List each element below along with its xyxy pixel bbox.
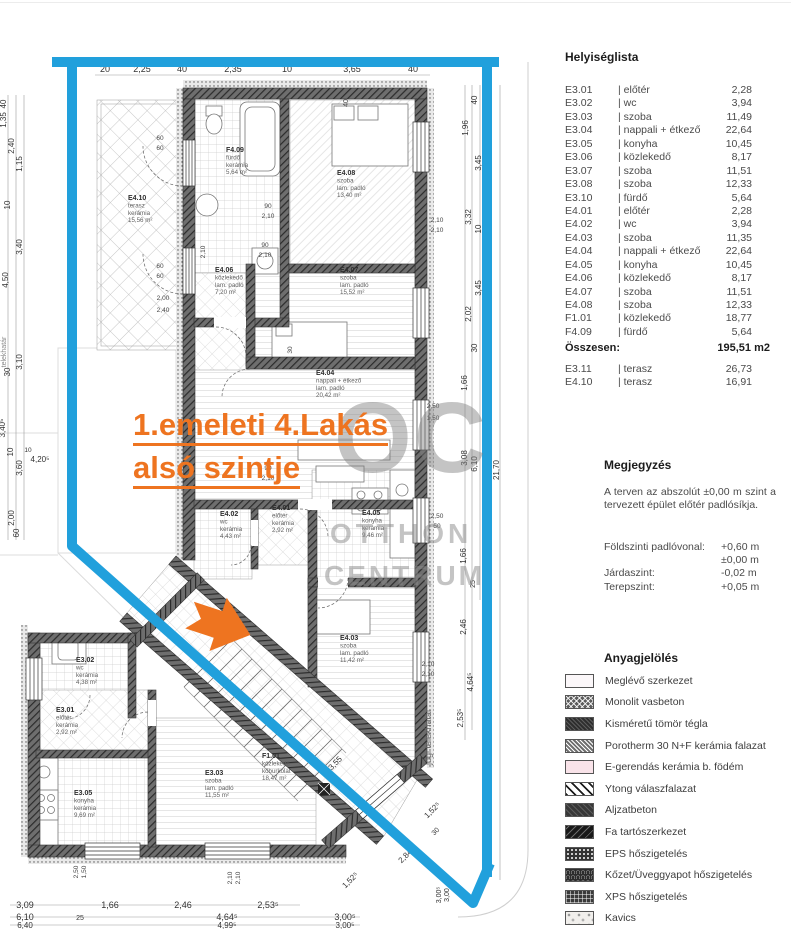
- dim-label: 2,00: [7, 510, 16, 526]
- room-list-cell: | előtér: [618, 205, 707, 218]
- legend-row: Kisméretű tömör tégla: [565, 713, 791, 735]
- dim-label: 40: [343, 99, 350, 107]
- room-label-code: F4.09: [226, 147, 244, 154]
- room-list-row: E3.02| wc3,94: [565, 97, 752, 110]
- kitchen-counter: [390, 470, 415, 558]
- room-list-cell: E3.02: [565, 97, 618, 110]
- room-label-detail: lam. padló: [316, 385, 345, 392]
- bed: [312, 600, 370, 634]
- legend-row: Monolit vasbeton: [565, 692, 791, 714]
- dim-label: 40: [0, 99, 8, 108]
- room-list-cell: 26,73: [707, 363, 752, 376]
- dim-label: 90: [264, 203, 272, 210]
- sink: [196, 194, 218, 216]
- room-list-cell: E3.10: [565, 192, 618, 205]
- dim-label: 10: [24, 447, 32, 454]
- room-list-cell: | fürdő: [618, 326, 707, 339]
- dim-label: 3,09: [16, 900, 34, 910]
- room-label-detail: 18,47 m²: [262, 775, 286, 782]
- dim-label: 3,08: [460, 450, 469, 466]
- dim-label: 30: [3, 367, 12, 376]
- legend-label: E-gerendás kerámia b. födém: [605, 761, 743, 773]
- dim-label: 40: [470, 95, 479, 104]
- room-list-cell: | nappali + étkező: [618, 245, 707, 258]
- legend-row: Porotherm 30 N+F kerámia falazat: [565, 735, 791, 757]
- room-label-detail: 9,69 m²: [74, 812, 95, 819]
- screed-swatch: [565, 803, 594, 817]
- room-label-detail: közlekedő: [215, 274, 243, 281]
- level-cell: Járdaszint:: [604, 567, 721, 580]
- room-list-cell: | szoba: [618, 299, 707, 312]
- legend-label: XPS hőszigetelés: [605, 891, 687, 903]
- dim-label: 2,50: [427, 403, 440, 410]
- room-list-row: E4.04| nappali + étkező22,64: [565, 245, 752, 258]
- total-row: Összesen: 195,51 m2: [565, 342, 770, 354]
- room-label-detail: 20,42 m²: [316, 392, 340, 399]
- room-label-detail: fürdő: [226, 154, 241, 161]
- room-label-detail: kerámia: [76, 672, 99, 679]
- legend-label: Ytong válaszfalazat: [605, 783, 696, 795]
- room-label-detail: 5,64 m²: [226, 169, 247, 176]
- room-list-cell: | közlekedő: [618, 151, 707, 164]
- room-list-cell: | szoba: [618, 165, 707, 178]
- room-list-cell: E3.05: [565, 138, 618, 151]
- dim-label: 10: [6, 447, 15, 456]
- room-list-cell: 5,64: [707, 326, 752, 339]
- unit-annotation: 1.emeleti 4.Lakás alsó szintje: [133, 404, 388, 490]
- room-label-detail: konyha: [362, 517, 383, 524]
- room-list-cell: F4.09: [565, 326, 618, 339]
- room-label-detail: szoba: [340, 642, 357, 649]
- legend-row: Kőzet/Üveggyapot hőszigetelés: [565, 864, 791, 886]
- room-list-cell: | közlekedő: [618, 272, 707, 285]
- room-list-cell: 8,17: [707, 151, 752, 164]
- legend-row: E-gerendás kerámia b. födém: [565, 756, 791, 778]
- room-label-detail: kőburkolat: [262, 768, 291, 775]
- room-label-code: E4.10: [128, 195, 146, 202]
- room-label-detail: kerámia: [56, 722, 79, 729]
- room-list-row: E4.10| terasz16,91: [565, 376, 752, 389]
- room-list-cell: E4.10: [565, 376, 618, 389]
- level-cell: -0,02 m: [721, 567, 776, 580]
- room-list-cell: | nappali + étkező: [618, 124, 707, 137]
- dim-label: 1,50: [81, 865, 88, 878]
- room-label-detail: lam. padló: [337, 185, 366, 192]
- room-list-row: F4.09| fürdő5,64: [565, 326, 752, 339]
- room-list-cell: 12,33: [707, 299, 752, 312]
- room-label-detail: közlekedő: [262, 760, 290, 767]
- sheet-border: [458, 62, 528, 917]
- wool-swatch: [565, 868, 594, 882]
- legend-label: Kavics: [605, 912, 636, 924]
- level-cell: [604, 554, 721, 567]
- slab-swatch: [565, 760, 594, 774]
- dim-label: telekhatár: [1, 336, 8, 367]
- legend-label: Kőzet/Üveggyapot hőszigetelés: [605, 869, 752, 881]
- room-label-code: E4.01: [272, 505, 290, 512]
- room-label-detail: 15,52 m²: [340, 289, 364, 296]
- dim-label: 1,66: [460, 375, 469, 391]
- room-list-row: F1.01| közlekedő18,77: [565, 312, 752, 325]
- notes-title: Megjegyzés: [604, 458, 671, 472]
- dim-label: 3,45: [474, 155, 483, 171]
- room-list-cell: 22,64: [707, 124, 752, 137]
- dim-label: 10: [3, 200, 12, 209]
- level-row: ±0,00 m: [604, 554, 776, 567]
- dim-label: 1,15: [15, 156, 24, 172]
- dim-label: 2,46: [174, 900, 192, 910]
- level-row: Terepszint:+0,05 m: [604, 581, 776, 594]
- dim-label: 2,10: [431, 227, 444, 234]
- dim-label: 3,40: [15, 239, 24, 255]
- room-label-detail: 15,56 m²: [128, 217, 152, 224]
- gravel-swatch: [565, 911, 594, 925]
- room-list-row: E4.01| előtér2,28: [565, 205, 752, 218]
- room-list-cell: E3.03: [565, 111, 618, 124]
- dim-label: 2,10: [262, 213, 275, 220]
- room-label-detail: szoba: [340, 274, 357, 281]
- room-list-cell: | szoba: [618, 178, 707, 191]
- dim-label: 2,40: [157, 307, 170, 314]
- room-label-detail: lam. padló: [340, 650, 369, 657]
- legend-row: Aljzatbeton: [565, 800, 791, 822]
- room-list-row: E4.07| szoba11,51: [565, 286, 752, 299]
- room-list-cell: E3.06: [565, 151, 618, 164]
- legend-label: Kisméretű tömör tégla: [605, 718, 708, 730]
- room-list-cell: 11,49: [707, 111, 752, 124]
- room-list-cell: F1.01: [565, 312, 618, 325]
- dim-label: 2,10: [227, 871, 234, 884]
- room-list-cell: | szoba: [618, 286, 707, 299]
- dim-label: 10: [474, 224, 483, 233]
- brick-swatch: [565, 717, 594, 731]
- dim-label: 2,10: [422, 671, 435, 678]
- room-label-code: E4.05: [362, 510, 380, 517]
- dim-label: jogi telekhatár: [423, 709, 433, 766]
- legend-label: EPS hőszigetelés: [605, 848, 687, 860]
- room-list-row: E4.02| wc3,94: [565, 218, 752, 231]
- dim-label: 2,02: [464, 306, 473, 322]
- dim-label: 2,50: [431, 513, 444, 520]
- room-label-code: E4.04: [316, 370, 334, 377]
- ytong-swatch: [565, 782, 594, 796]
- room-label-detail: szoba: [337, 177, 354, 184]
- room-list-cell: 5,64: [707, 192, 752, 205]
- room-label-detail: 4,43 m²: [220, 533, 241, 540]
- room-label-detail: kerámia: [74, 805, 97, 812]
- room-label-detail: szoba: [205, 777, 222, 784]
- materials-legend: Meglévő szerkezetMonolit vasbetonKismére…: [565, 670, 791, 929]
- room-list-cell: 3,94: [707, 218, 752, 231]
- unit-annotation-line2: alsó szintje: [133, 450, 300, 489]
- dim-label: 30: [470, 343, 479, 352]
- dim-label: 60: [156, 273, 164, 280]
- room-label-detail: lam. padló: [340, 282, 369, 289]
- dim-label: 4,20⁵: [31, 455, 50, 464]
- room-list-row: E3.04| nappali + étkező22,64: [565, 124, 752, 137]
- dim-label: 30: [287, 346, 294, 354]
- room-list-row: E3.01| előtér2,28: [565, 84, 752, 97]
- room-list-cell: | előtér: [618, 84, 707, 97]
- room-list-cell: E4.01: [565, 205, 618, 218]
- room-label-code: E4.07: [340, 267, 358, 274]
- room-list-row: E4.08| szoba12,33: [565, 299, 752, 312]
- room-list-cell: 8,17: [707, 272, 752, 285]
- room-list-cell: E4.06: [565, 272, 618, 285]
- room-list-row: E3.07| szoba11,51: [565, 165, 752, 178]
- legend-label: Porotherm 30 N+F kerámia falazat: [605, 740, 766, 752]
- info-panel: Helyiséglista E3.01| előtér2,28E3.02| wc…: [560, 0, 791, 929]
- dim-label: 6,10: [470, 456, 479, 472]
- room-list-cell: | terasz: [618, 363, 707, 376]
- room-list-cell: | konyha: [618, 138, 707, 151]
- dim-label: 2,40: [7, 138, 16, 154]
- total-label: Összesen:: [565, 342, 717, 354]
- dim-label: 3,60: [15, 460, 24, 476]
- room-list-cell: E4.05: [565, 259, 618, 272]
- room-label-code: E3.01: [56, 707, 74, 714]
- dim-label: 2,00: [157, 295, 170, 302]
- dim-label: 60: [156, 135, 164, 142]
- room-list-cell: 3,94: [707, 97, 752, 110]
- room-list-cell: 22,64: [707, 245, 752, 258]
- room-label-code: F1.01: [262, 753, 280, 760]
- room-label-detail: lam. padló: [205, 785, 234, 792]
- materials-title: Anyagjelölés: [604, 651, 678, 665]
- dim-label: 4,50: [1, 272, 10, 288]
- dim-label: 3,00⁵: [336, 921, 355, 929]
- room-label-detail: 2,92 m²: [56, 729, 77, 736]
- room-list-row: E3.06| közlekedő8,17: [565, 151, 752, 164]
- dim-label: 1,52⁵: [340, 870, 360, 890]
- room-list-row: E4.05| konyha10,45: [565, 259, 752, 272]
- dim-label: 90: [261, 242, 269, 249]
- level-cell: +0,60 m: [721, 541, 776, 554]
- level-cell: ±0,00 m: [721, 554, 776, 567]
- room-list-cell: 12,33: [707, 178, 752, 191]
- legend-row: Fa tartószerkezet: [565, 821, 791, 843]
- room-label-detail: 9,46 m²: [362, 532, 383, 539]
- room-list-title: Helyiséglista: [565, 50, 638, 64]
- room-label-detail: lam. padló: [215, 282, 244, 289]
- room-label-code: E3.03: [205, 770, 223, 777]
- room-list-cell: E4.08: [565, 299, 618, 312]
- room-label-detail: kerámia: [128, 210, 151, 217]
- dim-label: 30: [431, 827, 442, 838]
- room-list-cell: | közlekedő: [618, 312, 707, 325]
- room-list-cell: E4.07: [565, 286, 618, 299]
- legend-row: EPS hőszigetelés: [565, 843, 791, 865]
- floor-plan-area: 202,25402,35103,6540401,352,401,15103,40…: [0, 0, 545, 929]
- legend-label: Fa tartószerkezet: [605, 826, 686, 838]
- wood-swatch: [565, 825, 594, 839]
- room-label-detail: kerámia: [220, 526, 243, 533]
- room-label-detail: terasz: [128, 202, 145, 209]
- level-row: Földszinti padlóvonal:+0,60 m: [604, 541, 776, 554]
- legend-row: Kavics: [565, 908, 791, 930]
- room-list-cell: 11,35: [707, 232, 752, 245]
- dim-label: 3,10: [15, 354, 24, 370]
- unit-annotation-line1: 1.emeleti 4.Lakás: [133, 407, 388, 446]
- room-list-cell: E4.03: [565, 232, 618, 245]
- total-value: 195,51 m2: [717, 342, 770, 354]
- room-label-detail: kerámia: [226, 162, 249, 169]
- level-row: Járdaszint:-0,02 m: [604, 567, 776, 580]
- room-label-detail: 7,20 m²: [215, 289, 236, 296]
- room-label-code: E4.06: [215, 267, 233, 274]
- room-label-detail: kerámia: [272, 520, 295, 527]
- room-label-detail: 4,38 m²: [76, 679, 97, 686]
- room-list-row: E4.06| közlekedő8,17: [565, 272, 752, 285]
- dim-label: 2,53⁵: [456, 709, 465, 728]
- room-list-cell: 11,51: [707, 165, 752, 178]
- room-list-row: E3.11| terasz26,73: [565, 363, 752, 376]
- room-list-cell: 10,45: [707, 138, 752, 151]
- dim-label: 1,66: [101, 900, 119, 910]
- room-list: E3.01| előtér2,28E3.02| wc3,94E3.03| szo…: [565, 84, 752, 339]
- xps-swatch: [565, 890, 594, 904]
- room-label-detail: kerámia: [362, 525, 385, 532]
- room-label-detail: 13,40 m²: [337, 192, 361, 199]
- room-list-cell: E4.02: [565, 218, 618, 231]
- dim-label: 1,35: [0, 112, 8, 128]
- dim-label: 3,00⁵: [436, 887, 443, 904]
- room-list-cell: | wc: [618, 218, 707, 231]
- dim-label: 3,40⁵: [0, 419, 7, 438]
- room-label-detail: előtér: [272, 512, 287, 519]
- existing-swatch: [565, 674, 594, 688]
- room-list-cell: E3.07: [565, 165, 618, 178]
- dim-label: 6,40: [17, 921, 33, 929]
- room-list-cell: 16,91: [707, 376, 752, 389]
- dim-label: 2,10: [235, 871, 242, 884]
- dim-label: 60: [156, 145, 164, 152]
- dim-label: 3,45: [474, 280, 483, 296]
- dim-label: 1,50: [427, 415, 440, 422]
- room-label-detail: 2,92 m²: [272, 527, 293, 534]
- room-label-detail: konyha: [74, 797, 95, 804]
- dim-label: 25: [76, 915, 84, 922]
- porotherm-swatch: [565, 739, 594, 753]
- room-label-detail: nappali + étkező: [316, 377, 362, 384]
- dim-label: 60: [12, 528, 21, 537]
- dim-label: 25: [470, 580, 477, 588]
- rc-swatch: [565, 695, 594, 709]
- room-list-cell: 10,45: [707, 259, 752, 272]
- room-label-detail: 11,42 m²: [340, 657, 364, 664]
- legend-label: Aljzatbeton: [605, 804, 657, 816]
- level-list: Földszinti padlóvonal:+0,60 m±0,00 mJárd…: [604, 541, 776, 594]
- room-list-row: E3.03| szoba11,49: [565, 111, 752, 124]
- level-cell: +0,05 m: [721, 581, 776, 594]
- dim-label: 2,10: [422, 661, 435, 668]
- room-list-cell: 2,28: [707, 84, 752, 97]
- room-label-code: E3.05: [74, 790, 92, 797]
- legend-row: Ytong válaszfalazat: [565, 778, 791, 800]
- legend-label: Monolit vasbeton: [605, 696, 684, 708]
- dim-label: 60: [156, 263, 164, 270]
- room-list-cell: 2,28: [707, 205, 752, 218]
- dim-label: 1,66: [459, 548, 468, 564]
- room-list-cell: E4.04: [565, 245, 618, 258]
- room-list-cell: E3.01: [565, 84, 618, 97]
- room-label-code: E4.03: [340, 635, 358, 642]
- room-list-cell: E3.08: [565, 178, 618, 191]
- room-list-cell: 18,77: [707, 312, 752, 325]
- dim-label: 3,00: [444, 888, 451, 902]
- legend-row: XPS hőszigetelés: [565, 886, 791, 908]
- room-label-detail: wc: [219, 518, 228, 525]
- terrace-list: E3.11| terasz26,73E4.10| terasz16,91: [565, 363, 752, 390]
- eps-swatch: [565, 847, 594, 861]
- dim-label: 2,10: [200, 245, 207, 258]
- dim-label: 2,50: [73, 865, 80, 878]
- dim-label: 50: [433, 523, 441, 530]
- room-list-cell: | szoba: [618, 232, 707, 245]
- dim-label: 2,46: [459, 619, 468, 635]
- room-label-detail: előtér: [56, 714, 71, 721]
- dim-label: 2,10: [431, 217, 444, 224]
- room-label-code: E3.02: [76, 657, 94, 664]
- room-list-row: E3.08| szoba12,33: [565, 178, 752, 191]
- room-label-detail: wc: [75, 664, 84, 671]
- dim-label: 4,99⁵: [218, 921, 237, 929]
- dim-label: 1,96: [461, 120, 470, 136]
- room-label-code: E4.02: [220, 511, 238, 518]
- dim-label: 2,53⁵: [257, 900, 279, 910]
- room-list-cell: | terasz: [618, 376, 707, 389]
- room-label-code: E4.08: [337, 170, 355, 177]
- notes-body: A terven az abszolút ±0,00 m szint a ter…: [604, 486, 776, 512]
- room-list-cell: E3.04: [565, 124, 618, 137]
- level-cell: Földszinti padlóvonal:: [604, 541, 721, 554]
- level-cell: Terepszint:: [604, 581, 721, 594]
- dim-label: 21,70: [492, 459, 501, 480]
- dim-label: 2,10: [259, 252, 272, 259]
- dim-label: 1,52⁵: [422, 800, 442, 820]
- legend-label: Meglévő szerkezet: [605, 675, 693, 687]
- dim-label: 4,64⁵: [466, 673, 475, 692]
- room-list-row: E3.05| konyha10,45: [565, 138, 752, 151]
- room-list-row: E4.03| szoba11,35: [565, 232, 752, 245]
- room-list-cell: E3.11: [565, 363, 618, 376]
- legend-row: Meglévő szerkezet: [565, 670, 791, 692]
- dim-label: 3,32: [464, 209, 473, 225]
- room-list-cell: 11,51: [707, 286, 752, 299]
- room-list-row: E3.10| fürdő5,64: [565, 192, 752, 205]
- room-list-cell: | szoba: [618, 111, 707, 124]
- room-list-cell: | konyha: [618, 259, 707, 272]
- room-label-detail: 11,55 m²: [205, 792, 229, 799]
- room-list-cell: | wc: [618, 97, 707, 110]
- room-list-cell: | fürdő: [618, 192, 707, 205]
